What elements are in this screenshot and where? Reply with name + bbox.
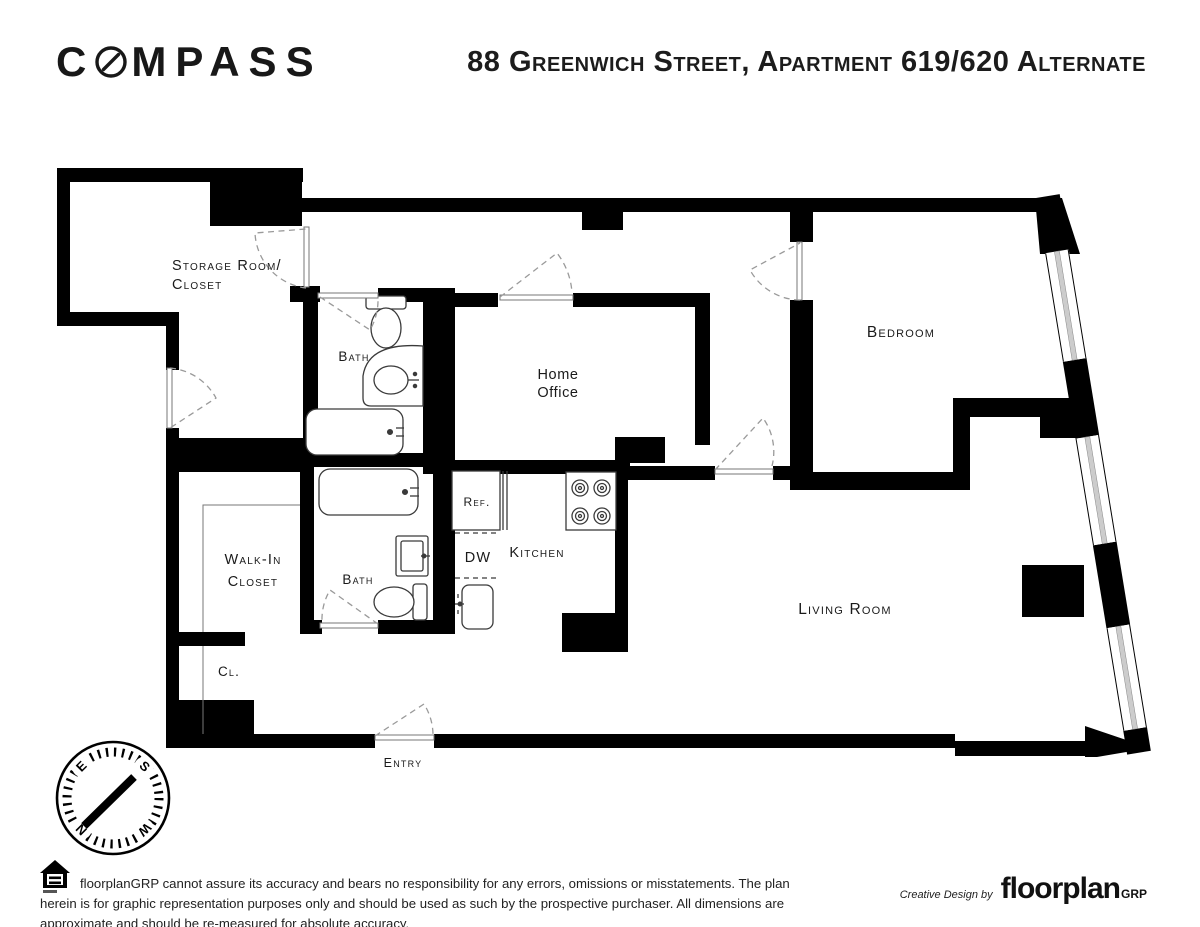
door-leaf	[320, 623, 378, 628]
door-leaf	[318, 293, 378, 298]
toilet-icon	[374, 584, 427, 620]
credit-brand: floorplan	[1001, 874, 1120, 904]
room-label-home-office-2: Office	[537, 385, 578, 401]
label-refrigerator: Ref.	[463, 495, 490, 509]
door-leaf	[304, 227, 309, 287]
door-leaf	[167, 368, 172, 428]
sink-icon	[363, 346, 423, 406]
door-arc	[715, 418, 774, 470]
door-arc	[170, 368, 216, 428]
stove-icon	[566, 472, 616, 530]
door-arc	[750, 243, 800, 300]
door-leaf	[500, 295, 573, 300]
room-label-bath-upper: Bath	[338, 349, 369, 364]
credit-prefix: Creative Design by	[900, 889, 993, 901]
bathtub-icon	[306, 409, 404, 455]
kitchen-sink-icon	[455, 585, 493, 629]
room-labels: Storage Room/ Closet Bath Home Office Be…	[172, 258, 935, 770]
door-arc	[375, 704, 433, 736]
toilet-icon	[366, 296, 406, 348]
window-icon	[1106, 624, 1146, 731]
sink-icon	[396, 536, 430, 576]
floorplan-drawing: Storage Room/ Closet Bath Home Office Be…	[0, 0, 1200, 927]
door-leaf	[715, 469, 773, 474]
room-label-storage-1: Storage Room/	[172, 258, 282, 274]
bathtub-icon	[319, 469, 419, 515]
room-label-bath-lower: Bath	[342, 572, 373, 587]
room-label-home-office-1: Home	[537, 367, 578, 383]
fixture-layer	[203, 296, 616, 734]
floorplan-page: C MPASS 88 Greenwich Street, Apartment 6…	[0, 0, 1200, 927]
room-label-cl: Cl.	[218, 664, 240, 679]
closet-shelf-lines	[203, 505, 300, 734]
window-icon	[1075, 435, 1116, 545]
room-label-entry: Entry	[384, 756, 423, 770]
door-leaf	[375, 735, 434, 740]
room-label-kitchen: Kitchen	[509, 545, 564, 561]
designer-credit: Creative Design by floorplan GRP	[900, 874, 1147, 904]
disclaimer-text: floorplanGRP cannot assure its accuracy …	[40, 874, 802, 927]
window-wall	[1036, 194, 1151, 754]
room-label-walk-in-1: Walk-In	[224, 552, 281, 568]
label-dishwasher: DW	[465, 550, 492, 566]
compass-rose-icon: N E S W	[57, 742, 169, 854]
window-icon	[1045, 249, 1086, 361]
door-leaf	[797, 242, 802, 300]
room-label-walk-in-2: Closet	[228, 574, 278, 590]
room-label-bedroom: Bedroom	[867, 324, 935, 341]
door-arc	[322, 590, 378, 624]
room-label-storage-2: Closet	[172, 277, 222, 293]
credit-brand-suffix: GRP	[1121, 887, 1147, 901]
door-arc	[500, 253, 572, 297]
room-label-living-room: Living Room	[798, 601, 892, 618]
